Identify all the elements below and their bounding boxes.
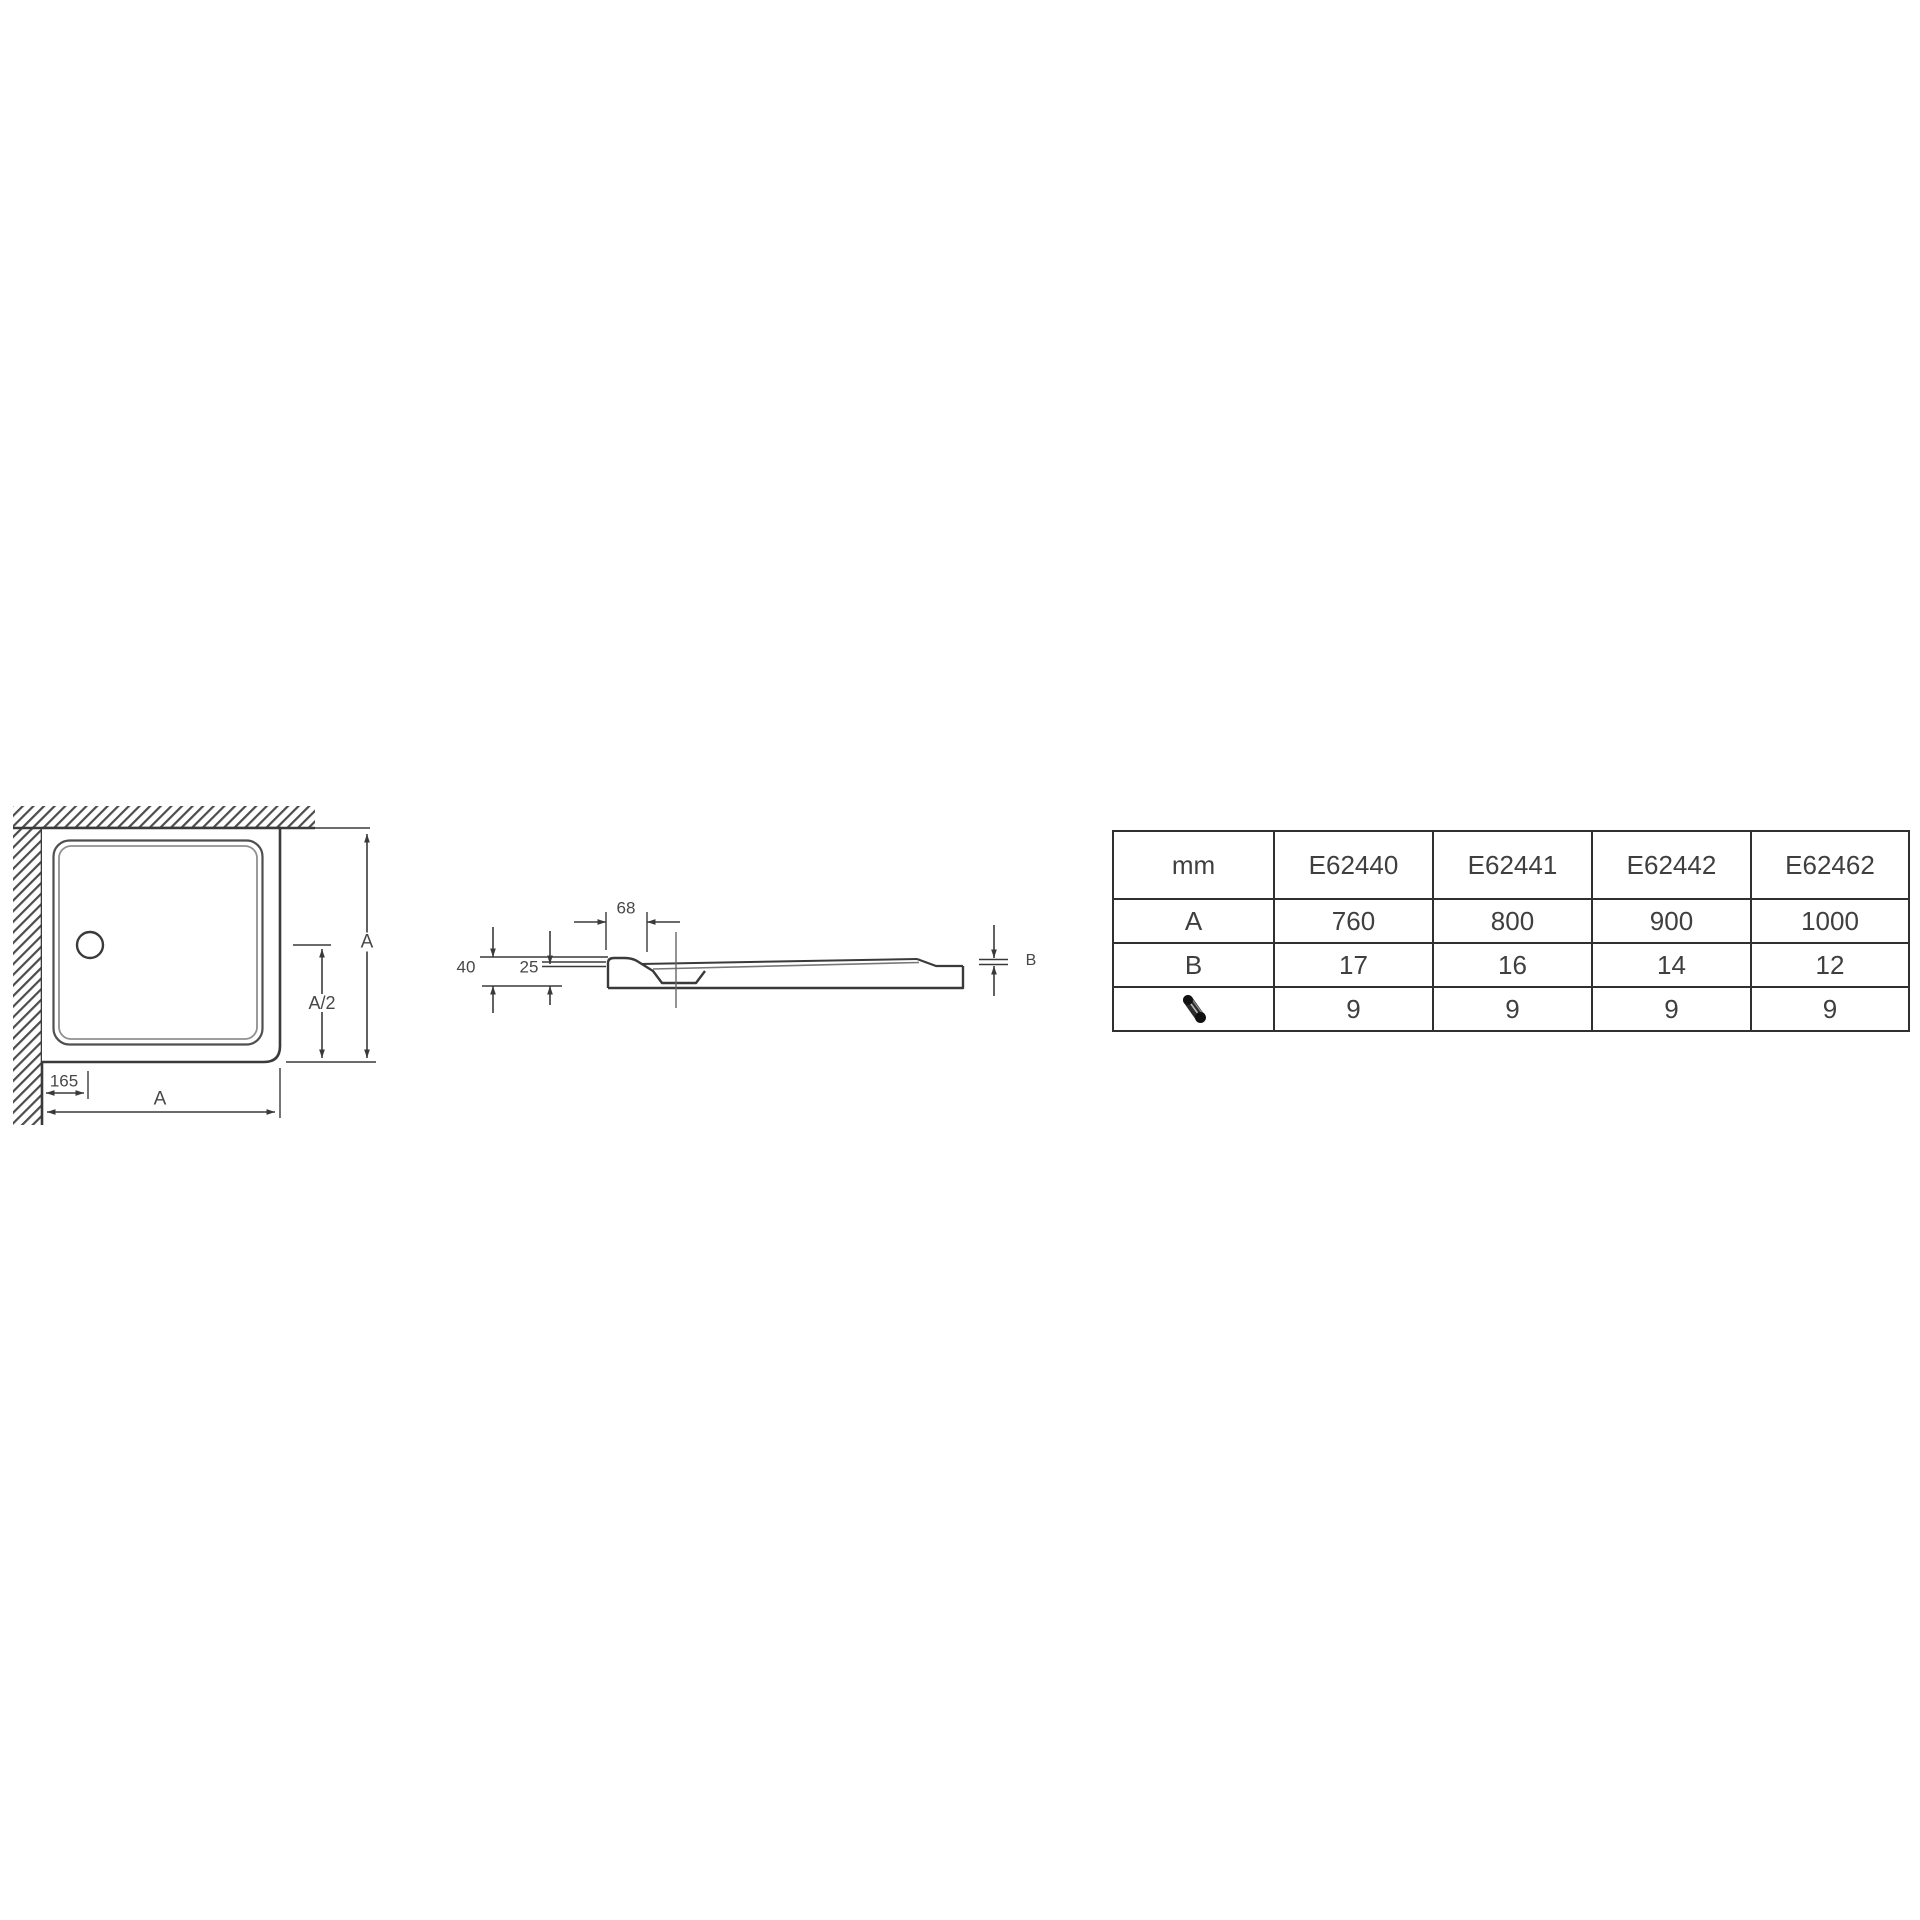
table-header-row: mm E62440 E62441 E62442 E62462 <box>1113 831 1909 899</box>
value-cell: 900 <box>1592 899 1751 943</box>
value-cell: 12 <box>1751 943 1909 987</box>
value-cell: 16 <box>1433 943 1592 987</box>
row-label: B <box>1113 943 1274 987</box>
row-label: A <box>1113 899 1274 943</box>
dim-label-b: B <box>1023 953 1040 969</box>
spec-table: mm E62440 E62441 E62442 E62462 A 760 800… <box>1112 830 1910 1032</box>
product-code-header: E62442 <box>1592 831 1751 899</box>
value-cell: 9 <box>1751 987 1909 1031</box>
section-view <box>480 912 1008 1013</box>
product-code-header: E62440 <box>1274 831 1433 899</box>
dim-label-a-bottom: A <box>151 1090 170 1109</box>
drain-icon-cell <box>1113 987 1274 1031</box>
shower-tray-technical-drawing: A A/2 A 165 68 40 25 B mm E62440 E62441 … <box>0 0 1920 1920</box>
drain-hole <box>77 932 103 958</box>
table-row-drain: 9 9 9 9 <box>1113 987 1909 1031</box>
wall-hatch-left <box>13 806 42 1125</box>
value-cell: 9 <box>1592 987 1751 1031</box>
value-cell: 800 <box>1433 899 1592 943</box>
profile-step <box>917 959 963 966</box>
product-code-header: E62462 <box>1751 831 1909 899</box>
value-cell: 9 <box>1433 987 1592 1031</box>
dim-label-68: 68 <box>614 900 639 917</box>
product-code-header: E62441 <box>1433 831 1592 899</box>
value-cell: 9 <box>1274 987 1433 1031</box>
table-row-b: B 17 16 14 12 <box>1113 943 1909 987</box>
dim-label-a-half: A/2 <box>305 994 338 1012</box>
wall-hatch-top <box>13 806 315 828</box>
drain-waste-icon <box>1176 990 1212 1028</box>
dim-label-a-right: A <box>358 933 377 952</box>
dim-label-165: 165 <box>47 1073 81 1090</box>
value-cell: 760 <box>1274 899 1433 943</box>
value-cell: 14 <box>1592 943 1751 987</box>
unit-header-cell: mm <box>1113 831 1274 899</box>
value-cell: 1000 <box>1751 899 1909 943</box>
table-row-a: A 760 800 900 1000 <box>1113 899 1909 943</box>
dim-label-25: 25 <box>517 959 542 976</box>
value-cell: 17 <box>1274 943 1433 987</box>
dim-label-40: 40 <box>454 959 479 976</box>
